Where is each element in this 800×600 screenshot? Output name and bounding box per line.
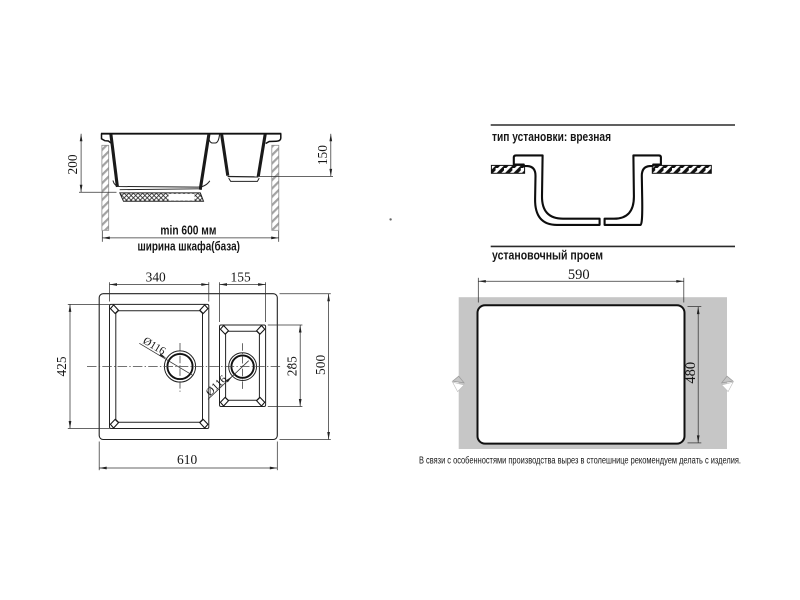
- svg-text:480: 480: [683, 362, 699, 384]
- svg-text:ширина шкафа(база): ширина шкафа(база): [137, 238, 240, 253]
- svg-text:тип установки: врезная: тип установки: врезная: [492, 129, 611, 144]
- svg-text:425: 425: [54, 356, 69, 376]
- svg-text:В связи с особенностями произв: В связи с особенностями производства выр…: [419, 456, 741, 467]
- svg-text:min 600 мм: min 600 мм: [160, 222, 216, 237]
- svg-text:155: 155: [231, 270, 251, 285]
- svg-text:150: 150: [315, 145, 330, 165]
- svg-text:340: 340: [146, 270, 166, 285]
- svg-text:285: 285: [285, 356, 300, 376]
- svg-text:установочный проем: установочный проем: [492, 248, 603, 263]
- svg-text:500: 500: [313, 355, 328, 375]
- svg-text:200: 200: [65, 154, 80, 174]
- svg-text:590: 590: [568, 267, 590, 283]
- svg-text:610: 610: [177, 452, 197, 467]
